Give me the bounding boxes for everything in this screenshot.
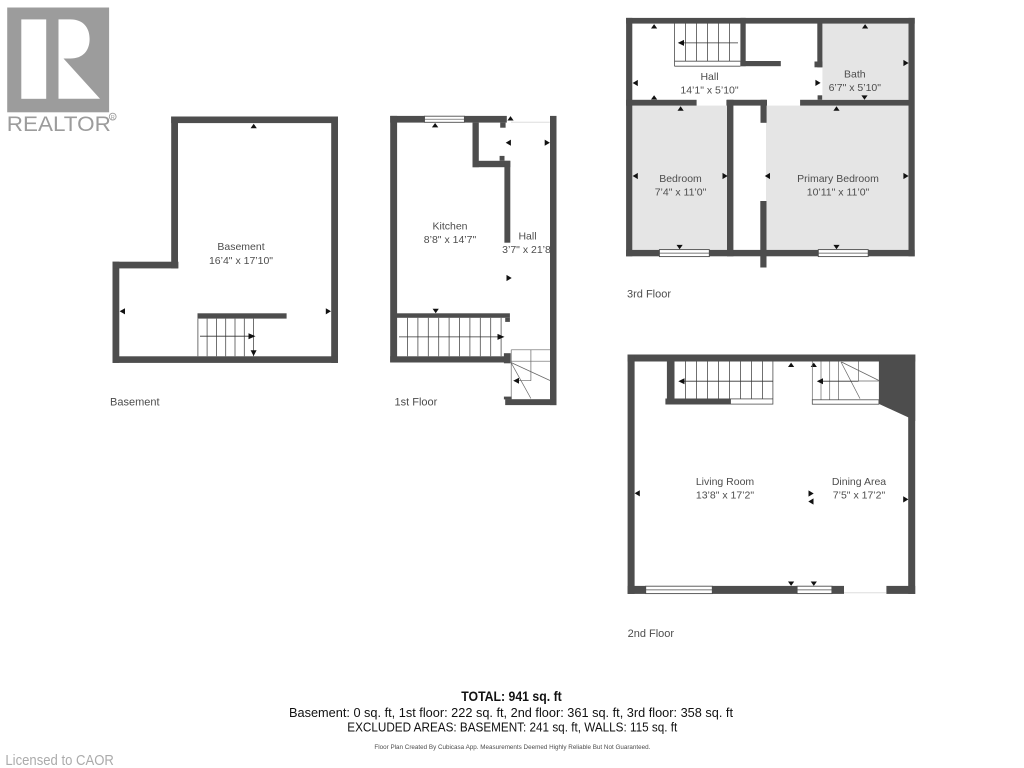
svg-text:Bedroom: Bedroom (659, 173, 702, 185)
svg-text:7’4" x 11’0": 7’4" x 11’0" (655, 187, 707, 199)
svg-text:2nd Floor: 2nd Floor (628, 628, 675, 640)
svg-text:Kitchen: Kitchen (432, 220, 467, 232)
svg-text:Licensed to CAOR: Licensed to CAOR (5, 752, 114, 768)
svg-text:6’7" x 5’10": 6’7" x 5’10" (829, 82, 882, 94)
svg-text:REALTOR: REALTOR (7, 113, 111, 136)
svg-text:16’4" x 17’10": 16’4" x 17’10" (209, 255, 273, 267)
svg-text:Basement: Basement (110, 397, 160, 409)
svg-text:Basement: 0 sq. ft, 1st floor:: Basement: 0 sq. ft, 1st floor: 222 sq. f… (289, 705, 733, 720)
svg-text:Hall: Hall (518, 231, 536, 243)
svg-text:3rd Floor: 3rd Floor (627, 289, 671, 301)
svg-text:Basement: Basement (217, 241, 264, 253)
svg-text:10’11" x 11’0": 10’11" x 11’0" (807, 187, 870, 199)
svg-text:EXCLUDED AREAS: BASEMENT: 241: EXCLUDED AREAS: BASEMENT: 241 sq. ft, WA… (347, 719, 677, 734)
svg-text:8’8" x 14’7": 8’8" x 14’7" (424, 234, 477, 246)
svg-text:Living Room: Living Room (696, 476, 755, 488)
svg-text:Bath: Bath (844, 69, 866, 81)
svg-text:7’5" x 17’2": 7’5" x 17’2" (833, 489, 886, 501)
svg-text:3’7" x 21’8: 3’7" x 21’8 (502, 244, 551, 256)
svg-text:Primary Bedroom: Primary Bedroom (797, 173, 879, 185)
svg-text:Floor Plan Created By Cubicasa: Floor Plan Created By Cubicasa App. Meas… (374, 744, 650, 751)
svg-text:R: R (111, 115, 115, 121)
svg-text:13’8" x 17’2": 13’8" x 17’2" (696, 489, 755, 501)
svg-text:Hall: Hall (700, 71, 718, 83)
svg-text:1st Floor: 1st Floor (395, 397, 438, 409)
svg-text:Dining Area: Dining Area (832, 476, 886, 488)
svg-text:TOTAL: 941 sq. ft: TOTAL: 941 sq. ft (461, 688, 562, 704)
svg-text:14’1" x 5’10": 14’1" x 5’10" (680, 85, 739, 97)
